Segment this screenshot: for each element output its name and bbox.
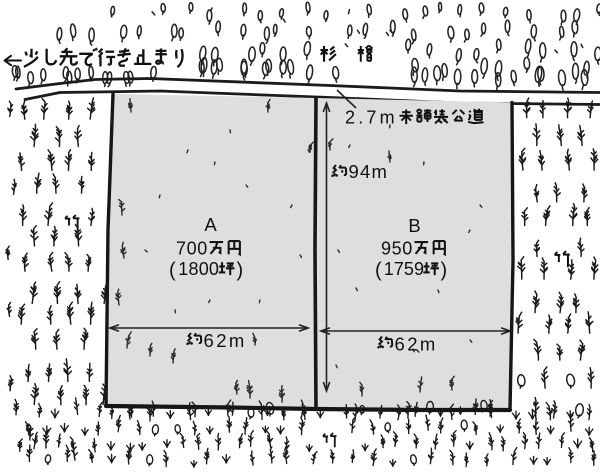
svg-text:1800: 1800 xyxy=(178,259,219,279)
svg-text:62m: 62m xyxy=(395,334,438,355)
svg-text:62m: 62m xyxy=(204,330,247,351)
svg-text:(: ( xyxy=(375,260,382,282)
svg-text:B: B xyxy=(408,215,420,236)
svg-text:A: A xyxy=(204,214,217,235)
svg-text:2.7m: 2.7m xyxy=(345,108,398,128)
svg-text:94m: 94m xyxy=(349,161,389,182)
svg-text:1759: 1759 xyxy=(384,259,424,279)
svg-text:950: 950 xyxy=(381,239,413,259)
svg-text:): ) xyxy=(441,260,448,282)
svg-text:700: 700 xyxy=(176,239,208,259)
svg-text:(: ( xyxy=(169,260,176,282)
svg-text:): ) xyxy=(237,260,244,282)
